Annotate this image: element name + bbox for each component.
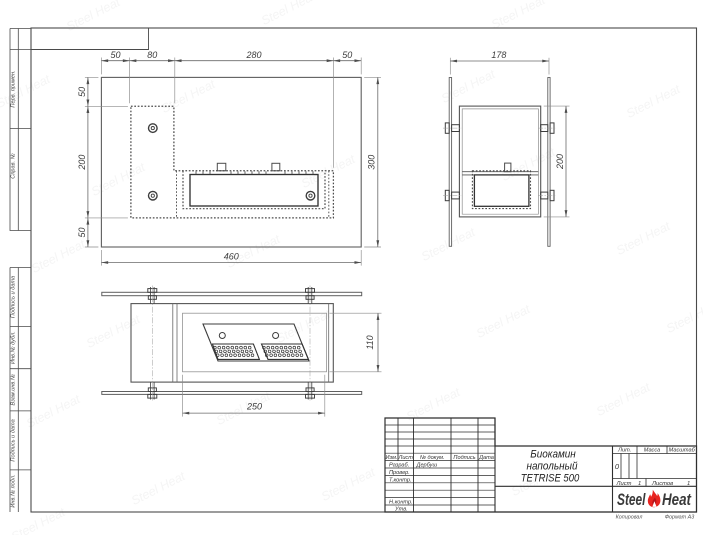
svg-text:Утв.: Утв. [394,507,408,513]
svg-text:Инв.№ дубл.: Инв.№ дубл. [11,331,17,364]
svg-text:Масса: Масса [644,448,661,454]
svg-text:Подпись: Подпись [453,455,475,461]
svg-text:Steel Heat: Steel Heat [129,469,188,508]
svg-text:Листов: Листов [651,481,673,487]
svg-text:Дата: Дата [478,455,494,461]
svg-text:460: 460 [224,252,239,262]
svg-text:300: 300 [367,155,377,170]
svg-text:178: 178 [491,50,506,60]
svg-text:Steel Heat: Steel Heat [9,505,68,535]
svg-text:Steel Heat: Steel Heat [274,307,333,346]
svg-text:Т.контр.: Т.контр. [389,477,412,483]
svg-text:Перв. примен.: Перв. примен. [11,70,17,107]
svg-text:110: 110 [365,335,375,349]
svg-text:Лист: Лист [397,455,413,461]
svg-text:Steel Heat: Steel Heat [419,225,478,264]
svg-text:250: 250 [246,402,262,412]
svg-text:Steel Heat: Steel Heat [319,465,378,504]
svg-text:Биокамин: Биокамин [530,449,576,461]
svg-text:Steel Heat: Steel Heat [489,0,548,32]
svg-text:Steel Heat: Steel Heat [159,77,218,116]
svg-text:50: 50 [77,227,87,237]
svg-text:№ докум.: № докум. [420,455,445,461]
svg-text:Steel Heat: Steel Heat [29,237,88,276]
svg-text:Дербуш: Дербуш [416,463,438,469]
svg-text:80: 80 [147,50,157,60]
svg-text:Steel Heat: Steel Heat [614,219,673,258]
svg-text:Лит.: Лит. [617,448,631,454]
svg-text:Формат А3: Формат А3 [665,515,695,521]
svg-text:Разраб.: Разраб. [389,463,409,469]
svg-text:Steel Heat: Steel Heat [624,82,683,121]
svg-text:50: 50 [110,50,120,60]
svg-text:Steel Heat: Steel Heat [439,67,498,106]
svg-text:Steel Heat: Steel Heat [664,297,703,336]
svg-text:280: 280 [245,50,261,60]
svg-text:Инв.№ подл.: Инв.№ подл. [11,474,17,507]
svg-text:Steel Heat: Steel Heat [64,0,123,34]
svg-text:Н.контр.: Н.контр. [389,500,413,506]
svg-text:Steel: Steel [617,491,646,509]
svg-text:напольный: напольный [527,461,578,473]
svg-text:50: 50 [77,87,87,97]
svg-text:Steel Heat: Steel Heat [84,312,143,351]
svg-text:Копировал: Копировал [616,515,643,521]
svg-text:Взам.инв.№: Взам.инв.№ [11,374,17,406]
svg-text:Изм.: Изм. [386,455,398,461]
svg-text:200: 200 [555,154,565,170]
svg-text:Steel Heat: Steel Heat [24,392,83,431]
svg-text:Провер.: Провер. [389,470,410,476]
svg-text:50: 50 [342,50,352,60]
svg-text:Steel Heat: Steel Heat [474,302,533,341]
svg-text:Справ. №: Справ. № [11,153,17,178]
svg-text:Масштаб: Масштаб [669,448,696,454]
svg-text:TETRISE 500: TETRISE 500 [521,472,580,484]
svg-text:Steel Heat: Steel Heat [259,0,318,28]
svg-text:Steel Heat: Steel Heat [594,380,653,419]
svg-text:Подпись и дата: Подпись и дата [11,419,17,461]
svg-text:Лист: Лист [616,481,632,487]
svg-text:Steel Heat: Steel Heat [0,72,53,111]
svg-text:Steel Heat: Steel Heat [89,160,148,199]
svg-text:1: 1 [638,481,641,487]
svg-text:0: 0 [615,462,620,471]
svg-text:200: 200 [77,155,87,171]
svg-text:Подпись и дата: Подпись и дата [11,276,17,318]
svg-text:Heat: Heat [662,491,692,509]
svg-text:1: 1 [687,481,690,487]
